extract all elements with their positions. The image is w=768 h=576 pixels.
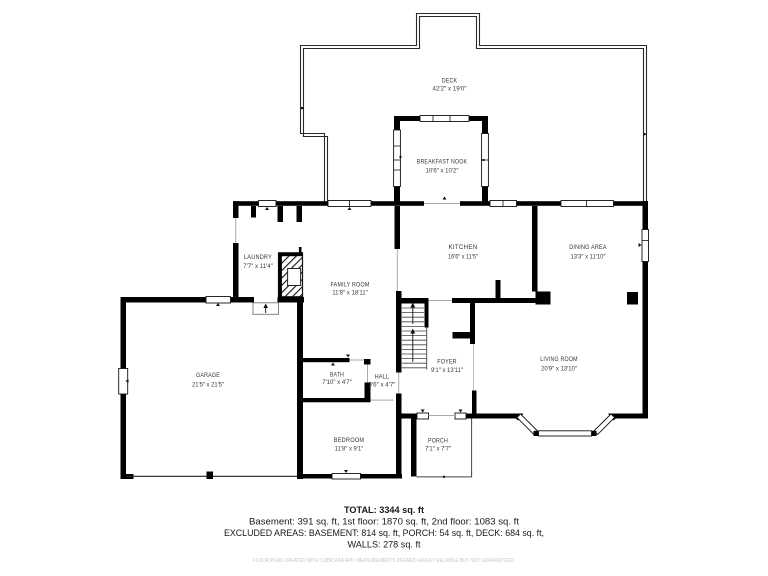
- svg-text:11′8″ x 18′11″: 11′8″ x 18′11″: [332, 291, 368, 297]
- svg-text:7′10″ x 4′7″: 7′10″ x 4′7″: [322, 380, 352, 386]
- svg-text:7′1″ x 7′7″: 7′1″ x 7′7″: [425, 447, 452, 453]
- svg-text:FAMILY ROOM: FAMILY ROOM: [331, 282, 370, 289]
- svg-text:EXCLUDED AREAS: BASEMENT: 814: EXCLUDED AREAS: BASEMENT: 814 sq. ft, PO…: [224, 528, 544, 539]
- svg-text:FLOOR PLAN CREATED WITH CUBICA: FLOOR PLAN CREATED WITH CUBICASA APP. ME…: [253, 558, 515, 564]
- svg-text:3′6″ x 4′7″: 3′6″ x 4′7″: [369, 383, 397, 389]
- svg-text:10′6″ x 10′2″: 10′6″ x 10′2″: [426, 169, 460, 175]
- svg-text:Basement: 391 sq. ft, 1st floo: Basement: 391 sq. ft, 1st floor: 1870 sq…: [249, 517, 519, 528]
- svg-text:BEDROOM: BEDROOM: [334, 437, 365, 444]
- svg-text:TOTAL: 3344 sq. ft: TOTAL: 3344 sq. ft: [344, 505, 425, 516]
- svg-text:42′2″ x 19′0″: 42′2″ x 19′0″: [433, 87, 468, 93]
- svg-text:FOYER: FOYER: [437, 359, 457, 366]
- svg-text:BATH: BATH: [330, 372, 344, 379]
- svg-text:GARAGE: GARAGE: [196, 372, 220, 379]
- svg-text:16′6″ x 11′5″: 16′6″ x 11′5″: [448, 255, 479, 261]
- svg-text:PORCH: PORCH: [428, 438, 448, 445]
- svg-text:11′8″ x 9′1″: 11′8″ x 9′1″: [335, 447, 364, 453]
- svg-text:DINING AREA: DINING AREA: [569, 244, 607, 251]
- svg-text:LAUNDRY: LAUNDRY: [244, 254, 272, 261]
- svg-text:KITCHEN: KITCHEN: [449, 244, 478, 251]
- svg-text:HALL: HALL: [375, 374, 390, 381]
- svg-text:20′9″ x 13′10″: 20′9″ x 13′10″: [541, 367, 578, 373]
- svg-text:DECK: DECK: [442, 78, 458, 85]
- svg-text:21′5″ x 21′5″: 21′5″ x 21′5″: [192, 383, 225, 389]
- svg-text:WALLS: 278 sq. ft: WALLS: 278 sq. ft: [348, 540, 421, 551]
- svg-text:7′7″ x 11′4″: 7′7″ x 11′4″: [243, 264, 273, 270]
- svg-text:9′1″ x 13′11″: 9′1″ x 13′11″: [431, 368, 464, 374]
- svg-text:13′3″ x 11′10″: 13′3″ x 11′10″: [571, 255, 607, 261]
- svg-text:BREAKFAST NOOK: BREAKFAST NOOK: [417, 159, 468, 166]
- svg-text:LIVING ROOM: LIVING ROOM: [540, 356, 578, 363]
